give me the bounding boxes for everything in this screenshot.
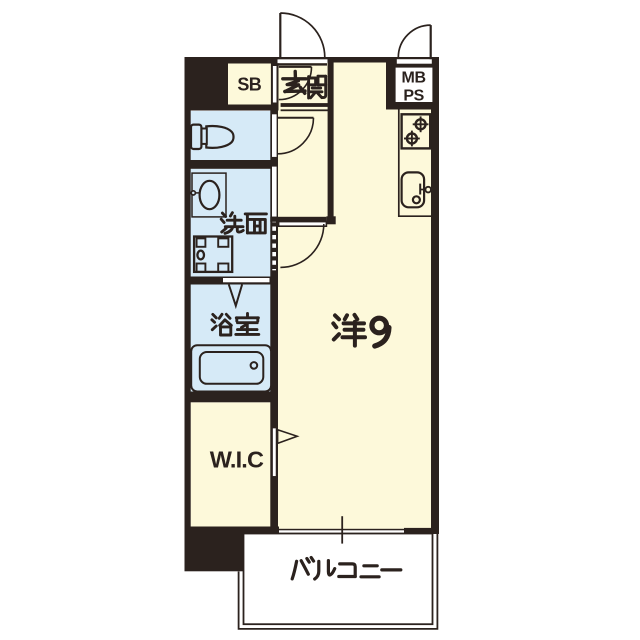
svg-text:W.I.C: W.I.C <box>210 446 264 472</box>
svg-text:SB: SB <box>237 75 261 95</box>
svg-text:PS: PS <box>403 87 424 104</box>
svg-text:MB: MB <box>402 69 426 86</box>
